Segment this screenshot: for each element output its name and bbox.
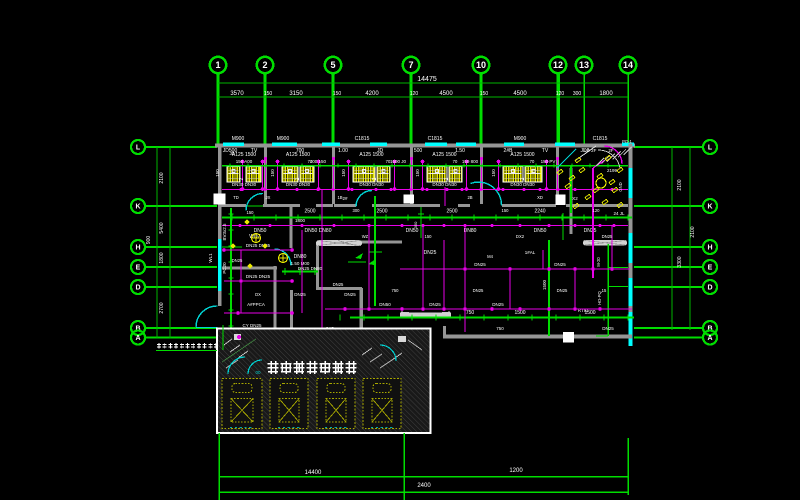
svg-text:150: 150	[491, 169, 496, 177]
svg-text:3300: 3300	[677, 256, 683, 267]
svg-text:150: 150	[341, 169, 346, 177]
svg-text:120: 120	[593, 208, 601, 213]
svg-text:150: 150	[264, 91, 273, 97]
svg-text:150: 150	[333, 91, 342, 97]
svg-text:2100: 2100	[690, 226, 696, 237]
svg-text:2: 2	[239, 177, 245, 180]
svg-text:1500: 1500	[542, 279, 547, 290]
svg-text:DN50: DN50	[534, 228, 547, 234]
svg-text:2100: 2100	[677, 179, 683, 190]
svg-text:BV3x2.5: BV3x2.5	[222, 223, 227, 241]
svg-text:DN25 DN25: DN25 DN25	[246, 274, 271, 279]
svg-text:1B: 1B	[337, 195, 342, 200]
svg-text:K: K	[135, 204, 140, 211]
svg-text:1200: 1200	[509, 468, 523, 474]
svg-text:DN50 DN80: DN50 DN80	[305, 228, 332, 234]
svg-text:DN30 DN30: DN30 DN30	[286, 182, 311, 187]
svg-text:TV: TV	[251, 148, 258, 154]
svg-text:A#PPCA: A#PPCA	[247, 302, 265, 307]
svg-text:E: E	[708, 265, 713, 272]
svg-text:150: 150	[415, 169, 420, 177]
svg-text:150: 150	[215, 169, 220, 177]
svg-text:L: L	[136, 145, 141, 152]
svg-text:K: K	[707, 204, 712, 211]
svg-text:2700: 2700	[159, 302, 165, 313]
svg-text:GND: GND	[618, 182, 623, 191]
svg-text:WL1: WL1	[208, 253, 213, 263]
svg-text:24 JL: 24 JL	[613, 211, 625, 216]
svg-text:DN25: DN25	[584, 228, 597, 234]
svg-text:2400: 2400	[417, 483, 431, 489]
svg-text:1500: 1500	[584, 310, 595, 316]
svg-text:2B: 2B	[467, 195, 472, 200]
svg-text:900: 900	[146, 236, 152, 245]
svg-text:4500: 4500	[513, 91, 527, 97]
svg-text:C1815: C1815	[355, 136, 370, 142]
svg-text:300: 300	[353, 208, 361, 213]
svg-text:2: 2	[444, 177, 450, 180]
svg-text:C1815: C1815	[593, 136, 608, 142]
svg-text:500: 500	[414, 148, 423, 154]
svg-text:150: 150	[425, 234, 433, 239]
svg-text:70: 70	[386, 159, 391, 164]
svg-text:150: 150	[480, 91, 489, 97]
svg-text:DN80: DN80	[294, 254, 307, 260]
svg-text:X2: X2	[572, 196, 578, 201]
svg-text:DN30 DN30: DN30 DN30	[359, 182, 384, 187]
svg-text:2#B: 2#B	[504, 148, 514, 154]
svg-text:XD: XD	[537, 195, 543, 200]
svg-text:H: H	[707, 245, 712, 252]
svg-text:WZ: WZ	[362, 234, 369, 239]
svg-text:1800: 1800	[599, 91, 613, 97]
svg-text:2500: 2500	[446, 209, 457, 215]
svg-text:70: 70	[530, 159, 535, 164]
svg-text:DN25: DN25	[557, 288, 568, 293]
svg-text:1500 J0: 1500 J0	[390, 159, 407, 164]
svg-text:1: 1	[215, 60, 220, 70]
svg-text:L: L	[708, 145, 713, 152]
svg-text:1800: 1800	[295, 218, 306, 223]
svg-text:2100: 2100	[159, 172, 165, 183]
svg-text:DN30 DN30: DN30 DN30	[510, 182, 535, 187]
svg-text:750: 750	[466, 310, 475, 316]
svg-text:TD: TD	[233, 195, 239, 200]
svg-text:750: 750	[392, 288, 400, 293]
svg-text:A: A	[135, 335, 140, 342]
svg-text:M900: M900	[232, 136, 245, 142]
svg-text:700: 700	[296, 148, 305, 154]
svg-text:M900: M900	[514, 136, 527, 142]
svg-text:2: 2	[295, 177, 301, 180]
svg-text:300: 300	[573, 91, 582, 97]
svg-text:1500: 1500	[514, 310, 525, 316]
svg-text:DN25: DN25	[602, 234, 613, 239]
svg-text:M4: M4	[487, 254, 493, 259]
svg-text:1800: 1800	[159, 252, 165, 263]
svg-text:DX2: DX2	[516, 234, 525, 239]
svg-text:12: 12	[553, 60, 563, 70]
svg-text:13: 13	[579, 60, 589, 70]
svg-text:DX: DX	[255, 292, 261, 297]
svg-text:A125 1500: A125 1500	[510, 152, 534, 158]
svg-text:DN25: DN25	[492, 302, 504, 307]
svg-text:PG-1: PG-1	[622, 139, 632, 144]
svg-text:7: 7	[408, 60, 413, 70]
svg-text:3150: 3150	[289, 91, 303, 97]
svg-text:D: D	[135, 285, 140, 292]
svg-text:1.50: 1.50	[455, 148, 465, 154]
svg-text:DN25: DN25	[554, 262, 566, 267]
svg-text:DN25: DN25	[294, 292, 306, 297]
svg-text:DN25: DN25	[602, 326, 614, 331]
svg-text:JD: JD	[229, 151, 234, 156]
svg-text:2: 2	[372, 177, 378, 180]
svg-text:2500: 2500	[304, 209, 315, 215]
svg-text:150 A00: 150 A00	[236, 159, 253, 164]
svg-text:DN25: DN25	[333, 282, 344, 287]
svg-text:JD: JD	[377, 148, 384, 154]
svg-text:2500: 2500	[376, 209, 387, 215]
svg-text:150 PV: 150 PV	[541, 159, 556, 164]
svg-text:70: 70	[308, 159, 313, 164]
svg-text:DN30 DN30: DN30 DN30	[232, 182, 257, 187]
svg-text:DN25: DN25	[474, 262, 486, 267]
svg-text:2#: 2#	[342, 196, 348, 201]
svg-text:14400: 14400	[305, 470, 322, 476]
svg-text:14475: 14475	[417, 76, 437, 83]
svg-text:DN25 DN80: DN25 DN80	[298, 266, 323, 271]
svg-text:00: 00	[255, 370, 261, 375]
svg-text:2240: 2240	[534, 209, 545, 215]
svg-text:4500: 4500	[439, 91, 453, 97]
svg-text:DN25: DN25	[429, 302, 441, 307]
svg-text:2: 2	[520, 177, 526, 180]
svg-text:A125 1500: A125 1500	[432, 152, 456, 158]
svg-text:J00 150: J00 150	[310, 159, 327, 164]
svg-text:TV: TV	[542, 148, 549, 154]
svg-text:DN30 DN30: DN30 DN30	[432, 182, 457, 187]
svg-text:2: 2	[262, 60, 267, 70]
svg-text:M-20: M-20	[596, 257, 601, 267]
svg-text:PC20: PC20	[222, 262, 227, 274]
svg-text:750: 750	[496, 326, 504, 331]
svg-text:C1815: C1815	[428, 136, 443, 142]
svg-text:150: 150	[270, 169, 275, 177]
svg-text:H: H	[135, 245, 140, 252]
svg-text:4200: 4200	[365, 91, 379, 97]
svg-text:5400: 5400	[159, 222, 165, 233]
svg-text:150 800: 150 800	[462, 159, 479, 164]
svg-text:150: 150	[502, 208, 510, 213]
svg-text:120: 120	[410, 91, 419, 97]
svg-text:DN25: DN25	[344, 292, 356, 297]
svg-text:E: E	[136, 265, 141, 272]
svg-text:DN25: DN25	[424, 250, 437, 256]
svg-text:150: 150	[247, 210, 255, 215]
svg-text:350: 350	[413, 221, 418, 228]
svg-text:120: 120	[556, 91, 565, 97]
svg-text:D: D	[707, 285, 712, 292]
svg-text:1.00: 1.00	[338, 148, 348, 154]
svg-text:15: 15	[602, 288, 607, 293]
svg-text:M900: M900	[277, 136, 290, 142]
svg-text:A: A	[707, 335, 712, 342]
svg-text:2199: 2199	[607, 168, 618, 173]
svg-text:5: 5	[330, 60, 335, 70]
svg-text:1#AL: 1#AL	[525, 250, 536, 255]
svg-text:JX: JX	[266, 195, 271, 200]
svg-text:DN50: DN50	[379, 302, 391, 307]
svg-text:DN25: DN25	[232, 258, 243, 263]
svg-text:UP 2F: UP 2F	[584, 148, 597, 153]
svg-text:3570: 3570	[230, 91, 244, 97]
svg-text:CY DN25: CY DN25	[243, 323, 262, 328]
svg-text:14: 14	[623, 60, 633, 70]
svg-text:10: 10	[476, 60, 486, 70]
svg-text:DN25: DN25	[473, 288, 484, 293]
svg-text:70: 70	[453, 159, 458, 164]
